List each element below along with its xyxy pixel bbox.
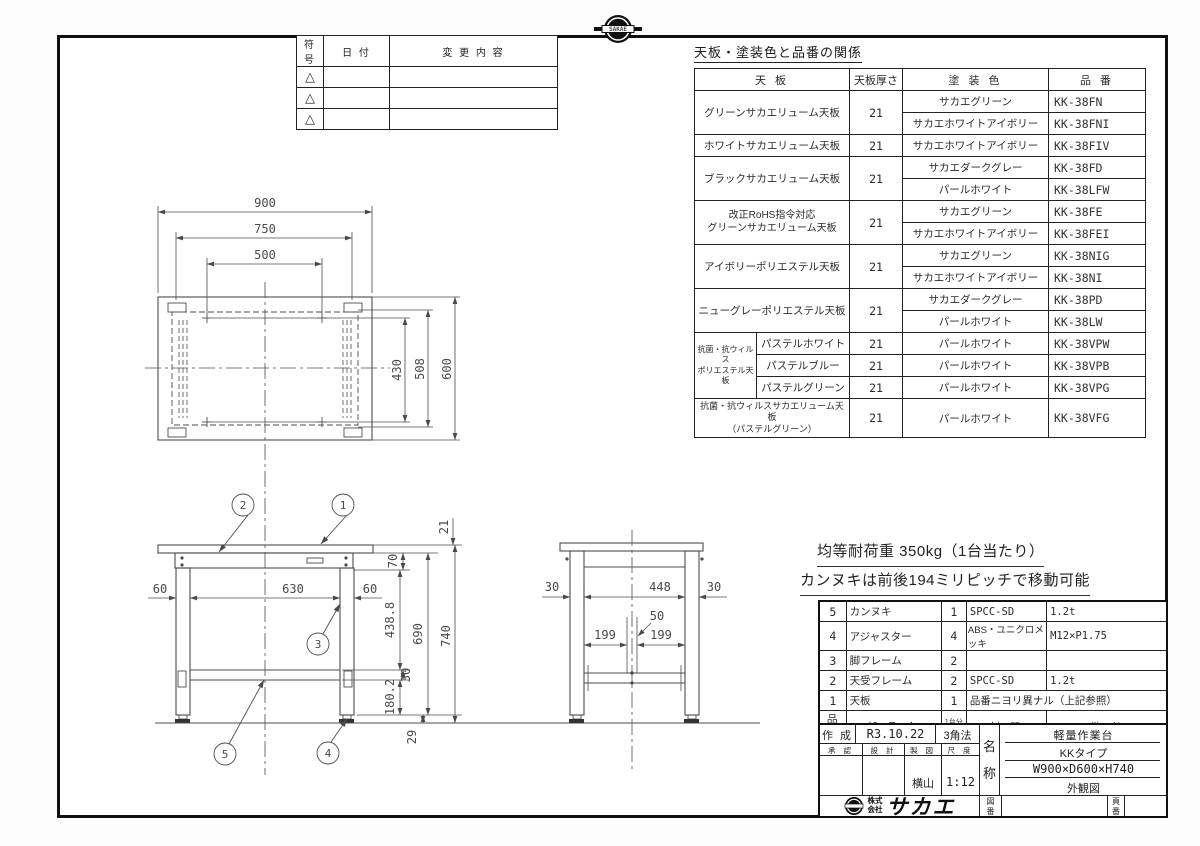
spec-color: サカエダークグレー (903, 289, 1049, 311)
revision-row: △ (297, 109, 558, 130)
dim-180-2: 180.2 (383, 679, 397, 715)
revision-row: △ (297, 88, 558, 109)
spec-thickness: 21 (850, 245, 903, 289)
top-view: 900 750 500 430 508 600 (145, 196, 460, 775)
spec-color: サカエダークグレー (903, 157, 1049, 179)
drawing-views: 900 750 500 430 508 600 (60, 170, 780, 800)
company-logo: 株式 会社 サカエ (820, 795, 979, 816)
dim-199-right: 199 (650, 628, 672, 642)
spec-thickness: 21 (850, 201, 903, 245)
part-qty: 4 (941, 622, 966, 651)
part-name: カンヌキ (846, 601, 941, 622)
part-material: SPCC-SD (966, 601, 1046, 622)
part-no: 5 (819, 601, 846, 622)
part-name: 脚フレーム (846, 651, 941, 671)
revision-col-date: 日 付 (324, 36, 390, 67)
drawing-sheet: { "logo": { "brand": "SAKAE", "company_p… (0, 0, 1200, 846)
spec-thickness: 21 (850, 377, 903, 399)
spec-color: サカエホワイトアイボリー (903, 135, 1049, 157)
product-type: KKタイプ (1001, 745, 1166, 761)
drafter-name: 横山 (905, 775, 941, 791)
load-capacity-note: 均等耐荷重 350kg（1台当たり） (817, 538, 1044, 567)
balloon-3-label: 3 (315, 638, 322, 651)
front-view-dimensions (148, 518, 462, 723)
dim-60-left: 60 (153, 582, 167, 596)
company-name: サカエ (887, 791, 956, 821)
revision-date-cell (324, 88, 390, 109)
balloons: 2 1 3 5 4 (214, 494, 354, 765)
revision-symbol-icon: △ (297, 109, 324, 130)
draft-label: 製 図 (905, 745, 941, 756)
dim-750: 750 (254, 222, 276, 236)
kannuki-slot-right (344, 671, 352, 687)
spec-code: KK-38FN (1049, 91, 1146, 113)
adjuster-feet (175, 715, 354, 723)
spec-thickness: 21 (850, 399, 903, 438)
right-leg-side (685, 551, 699, 715)
centerlines (145, 282, 390, 775)
scale-label: 尺 度 (942, 745, 979, 756)
part-name: 天受フレーム (846, 671, 941, 691)
part-qty: 2 (941, 651, 966, 671)
dim-500: 500 (254, 248, 276, 262)
spec-color: パールホワイト (903, 179, 1049, 201)
spec-color: サカエグリーン (903, 201, 1049, 223)
spec-code: KK-38NI (1049, 267, 1146, 289)
notes: 均等耐荷重 350kg（1台当たり） カンヌキは前後194ミリピッチで移動可能 (800, 538, 1090, 596)
spec-col-code: 品 番 (1049, 69, 1146, 91)
adjuster-feet-side (569, 715, 699, 723)
page-no-label: 頁 番 (1108, 797, 1124, 816)
spec-color: サカエホワイトアイボリー (903, 223, 1049, 245)
dim-30-left: 30 (545, 580, 559, 594)
side-bolts (565, 557, 703, 560)
dim-690: 690 (411, 623, 425, 645)
side-view-dim-labels: 30 448 30 50 199 199 (545, 580, 721, 642)
part-row: 1 天板 1 品番ニヨリ異ナル（上記参照） (819, 691, 1167, 711)
created-label: 作 成 (820, 727, 855, 743)
spec-thickness: 21 (850, 135, 903, 157)
dim-740: 740 (439, 625, 453, 647)
part-no: 3 (819, 651, 846, 671)
dim-448: 448 (649, 580, 671, 594)
drawing-type: 外観図 (1001, 780, 1166, 796)
spec-code: KK-38VPG (1049, 377, 1146, 399)
spec-code: KK-38FD (1049, 157, 1146, 179)
right-leg (340, 568, 354, 715)
sakae-top-emblem: SAKAE (594, 12, 642, 46)
part-remarks: M12×P1.75 (1047, 622, 1167, 651)
spec-color: パールホワイト (903, 333, 1049, 355)
top-view-dim-labels: 900 750 500 430 508 600 (254, 196, 454, 381)
revision-content-cell (390, 67, 558, 88)
spec-code: KK-38FIV (1049, 135, 1146, 157)
bolt-cross-marks (202, 313, 327, 427)
spec-code: KK-38NIG (1049, 245, 1146, 267)
spec-code: KK-38VPW (1049, 333, 1146, 355)
spec-color: パールホワイト (903, 399, 1049, 438)
drawing-no-label: 図 番 (980, 797, 1001, 816)
spec-thickness: 21 (850, 333, 903, 355)
spec-code: KK-38LW (1049, 311, 1146, 333)
spec-col-tenban: 天 板 (695, 69, 850, 91)
part-name: 天板 (846, 691, 941, 711)
spec-table-title: 天板・塗装色と品番の関係 (694, 42, 862, 63)
balloon-1-label: 1 (340, 499, 347, 512)
revision-col-content: 変 更 内 容 (390, 36, 558, 67)
name-column-label: 名 称 (980, 733, 999, 788)
left-leg-side (570, 551, 584, 715)
dim-30: 30 (399, 668, 413, 682)
dim-50: 50 (650, 609, 664, 623)
balloon-5-label: 5 (222, 748, 229, 761)
part-row: 2 天受フレーム 2 SPCC-SD 1.2t (819, 671, 1167, 691)
approve-label: 承 認 (820, 745, 862, 756)
dim-600: 600 (440, 358, 454, 380)
spec-thickness: 21 (850, 355, 903, 377)
revision-content-cell (390, 109, 558, 130)
dim-30-right: 30 (707, 580, 721, 594)
dim-60-right: 60 (363, 582, 377, 596)
tabletop-front (158, 545, 373, 553)
dim-199-left: 199 (594, 628, 616, 642)
part-remarks: 1.2t (1047, 671, 1167, 691)
spec-color: パールホワイト (903, 311, 1049, 333)
tabletop-side (560, 543, 703, 551)
part-remarks: 1.2t (1047, 601, 1167, 622)
dim-900: 900 (254, 196, 276, 210)
spec-tenban: ホワイトサカエリューム天板 (695, 135, 850, 157)
part-material: SPCC-SD (966, 671, 1046, 691)
created-date: R3.10.22 (856, 727, 935, 741)
part-remarks (1047, 651, 1167, 671)
revision-symbol-icon: △ (297, 67, 324, 88)
frame-slot (307, 558, 323, 563)
spec-color: サカエグリーン (903, 245, 1049, 267)
dim-438-8: 438.8 (383, 602, 397, 638)
revision-row: △ (297, 67, 558, 88)
spec-thickness: 21 (850, 91, 903, 135)
top-view-dimensions (158, 206, 460, 440)
part-qty: 1 (941, 601, 966, 622)
spec-color: パールホワイト (903, 355, 1049, 377)
dim-630: 630 (282, 582, 304, 596)
side-view: 30 448 30 50 199 199 (542, 530, 727, 770)
product-size: W900×D600×H740 (1001, 762, 1166, 776)
revision-date-cell (324, 109, 390, 130)
part-material (966, 651, 1046, 671)
revision-col-symbol: 符号 (297, 36, 324, 67)
spec-col-color: 塗 装 色 (903, 69, 1049, 91)
support-frame-front (175, 553, 353, 568)
spec-tenban: グリーンサカエリューム天板 (695, 91, 850, 135)
design-label: 設 計 (863, 745, 904, 756)
dim-508: 508 (413, 358, 427, 380)
spec-code: KK-38FNI (1049, 113, 1146, 135)
part-row: 4 アジャスター 4 ABS・ユニクロメッキ M12×P1.75 (819, 622, 1167, 651)
part-row: 5 カンヌキ 1 SPCC-SD 1.2t (819, 601, 1167, 622)
part-no: 2 (819, 671, 846, 691)
company-prefix: 株式 会社 (868, 797, 883, 814)
spec-code: KK-38VFG (1049, 399, 1146, 438)
spec-color: パールホワイト (903, 377, 1049, 399)
spec-code: KK-38VPB (1049, 355, 1146, 377)
sakae-emblem-small (844, 796, 864, 816)
left-leg (176, 568, 190, 715)
revision-date-cell (324, 67, 390, 88)
spec-thickness: 21 (850, 157, 903, 201)
part-no: 4 (819, 622, 846, 651)
product-name: 軽量作業台 (1001, 727, 1166, 743)
revision-table: 符号 日 付 変 更 内 容 △ △ △ (296, 35, 558, 130)
dim-430: 430 (390, 359, 404, 381)
part-qty: 2 (941, 671, 966, 691)
part-row: 3 脚フレーム 2 (819, 651, 1167, 671)
spec-col-thickness: 天板厚さ (850, 69, 903, 91)
projection-method: 3角法 (936, 727, 979, 743)
kannuki-pitch-note: カンヌキは前後194ミリピッチで移動可能 (800, 567, 1090, 596)
part-qty: 1 (941, 691, 966, 711)
dim-29: 29 (405, 730, 419, 744)
part-material: ABS・ユニクロメッキ (966, 622, 1046, 651)
spec-code: KK-38FEI (1049, 223, 1146, 245)
balloon-4-label: 4 (325, 747, 332, 760)
spec-code: KK-38LFW (1049, 179, 1146, 201)
revision-symbol-icon: △ (297, 88, 324, 109)
balloon-2-label: 2 (240, 499, 247, 512)
spec-code: KK-38PD (1049, 289, 1146, 311)
spec-color: サカエホワイトアイボリー (903, 113, 1049, 135)
title-block: 作 成 R3.10.22 3角法 承 認 設 計 製 図 尺 度 横山 1:12… (818, 723, 1168, 818)
scale-value: 1:12 (942, 775, 979, 789)
spec-thickness: 21 (850, 289, 903, 333)
spec-code: KK-38FE (1049, 201, 1146, 223)
revision-content-cell (390, 88, 558, 109)
emblem-brand-text: SAKAE (609, 26, 627, 33)
part-name: アジャスター (846, 622, 941, 651)
spec-color: サカエグリーン (903, 91, 1049, 113)
spec-color: サカエホワイトアイボリー (903, 267, 1049, 289)
part-material: 品番ニヨリ異ナル（上記参照） (966, 691, 1167, 711)
kannuki-slot-left (178, 671, 186, 687)
dim-21: 21 (437, 520, 451, 534)
dim-70: 70 (386, 554, 400, 568)
part-no: 1 (819, 691, 846, 711)
